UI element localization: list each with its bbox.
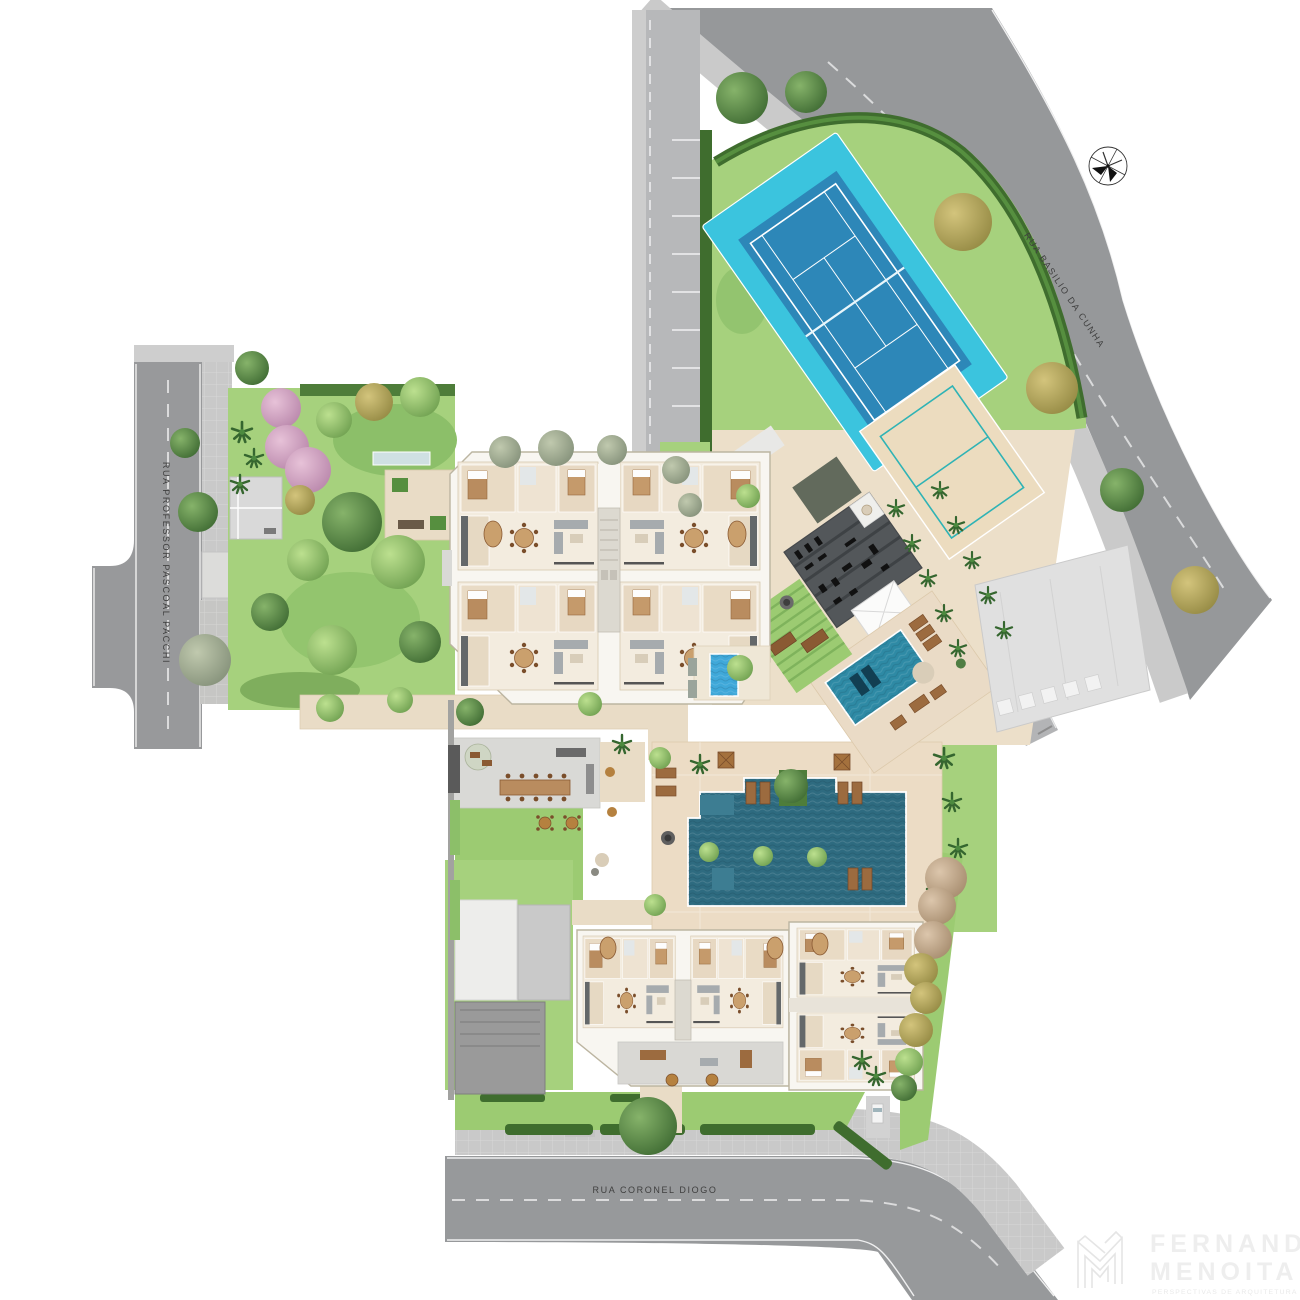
tower-2-lounge-deck (618, 1042, 783, 1086)
tower-1 (442, 452, 770, 704)
road-pascoal-pacchi (92, 362, 202, 749)
compass-north-icon (1089, 147, 1127, 185)
fm-monogram-icon (1078, 1232, 1122, 1288)
studio-logo: FERNANDO MENOITA PERSPECTIVAS DE ARQUITE… (1078, 1230, 1300, 1296)
logo-tagline: PERSPECTIVAS DE ARQUITETURA (1152, 1289, 1298, 1296)
siteplan-canvas: RUA PROFESSOR PASCOAL PACCHI RUA BASILIO… (0, 0, 1300, 1300)
logo-name-line2: MENOITA (1150, 1258, 1298, 1286)
street-label-coronel-diogo: RUA CORONEL DIOGO (593, 1185, 718, 1195)
siteplan-illustration: RUA PROFESSOR PASCOAL PACCHI RUA BASILIO… (0, 0, 1300, 1300)
street-label-pascoal-pacchi: RUA PROFESSOR PASCOAL PACCHI (161, 462, 171, 664)
tower-2-core (675, 980, 691, 1040)
logo-name-line1: FERNANDO (1150, 1230, 1300, 1258)
